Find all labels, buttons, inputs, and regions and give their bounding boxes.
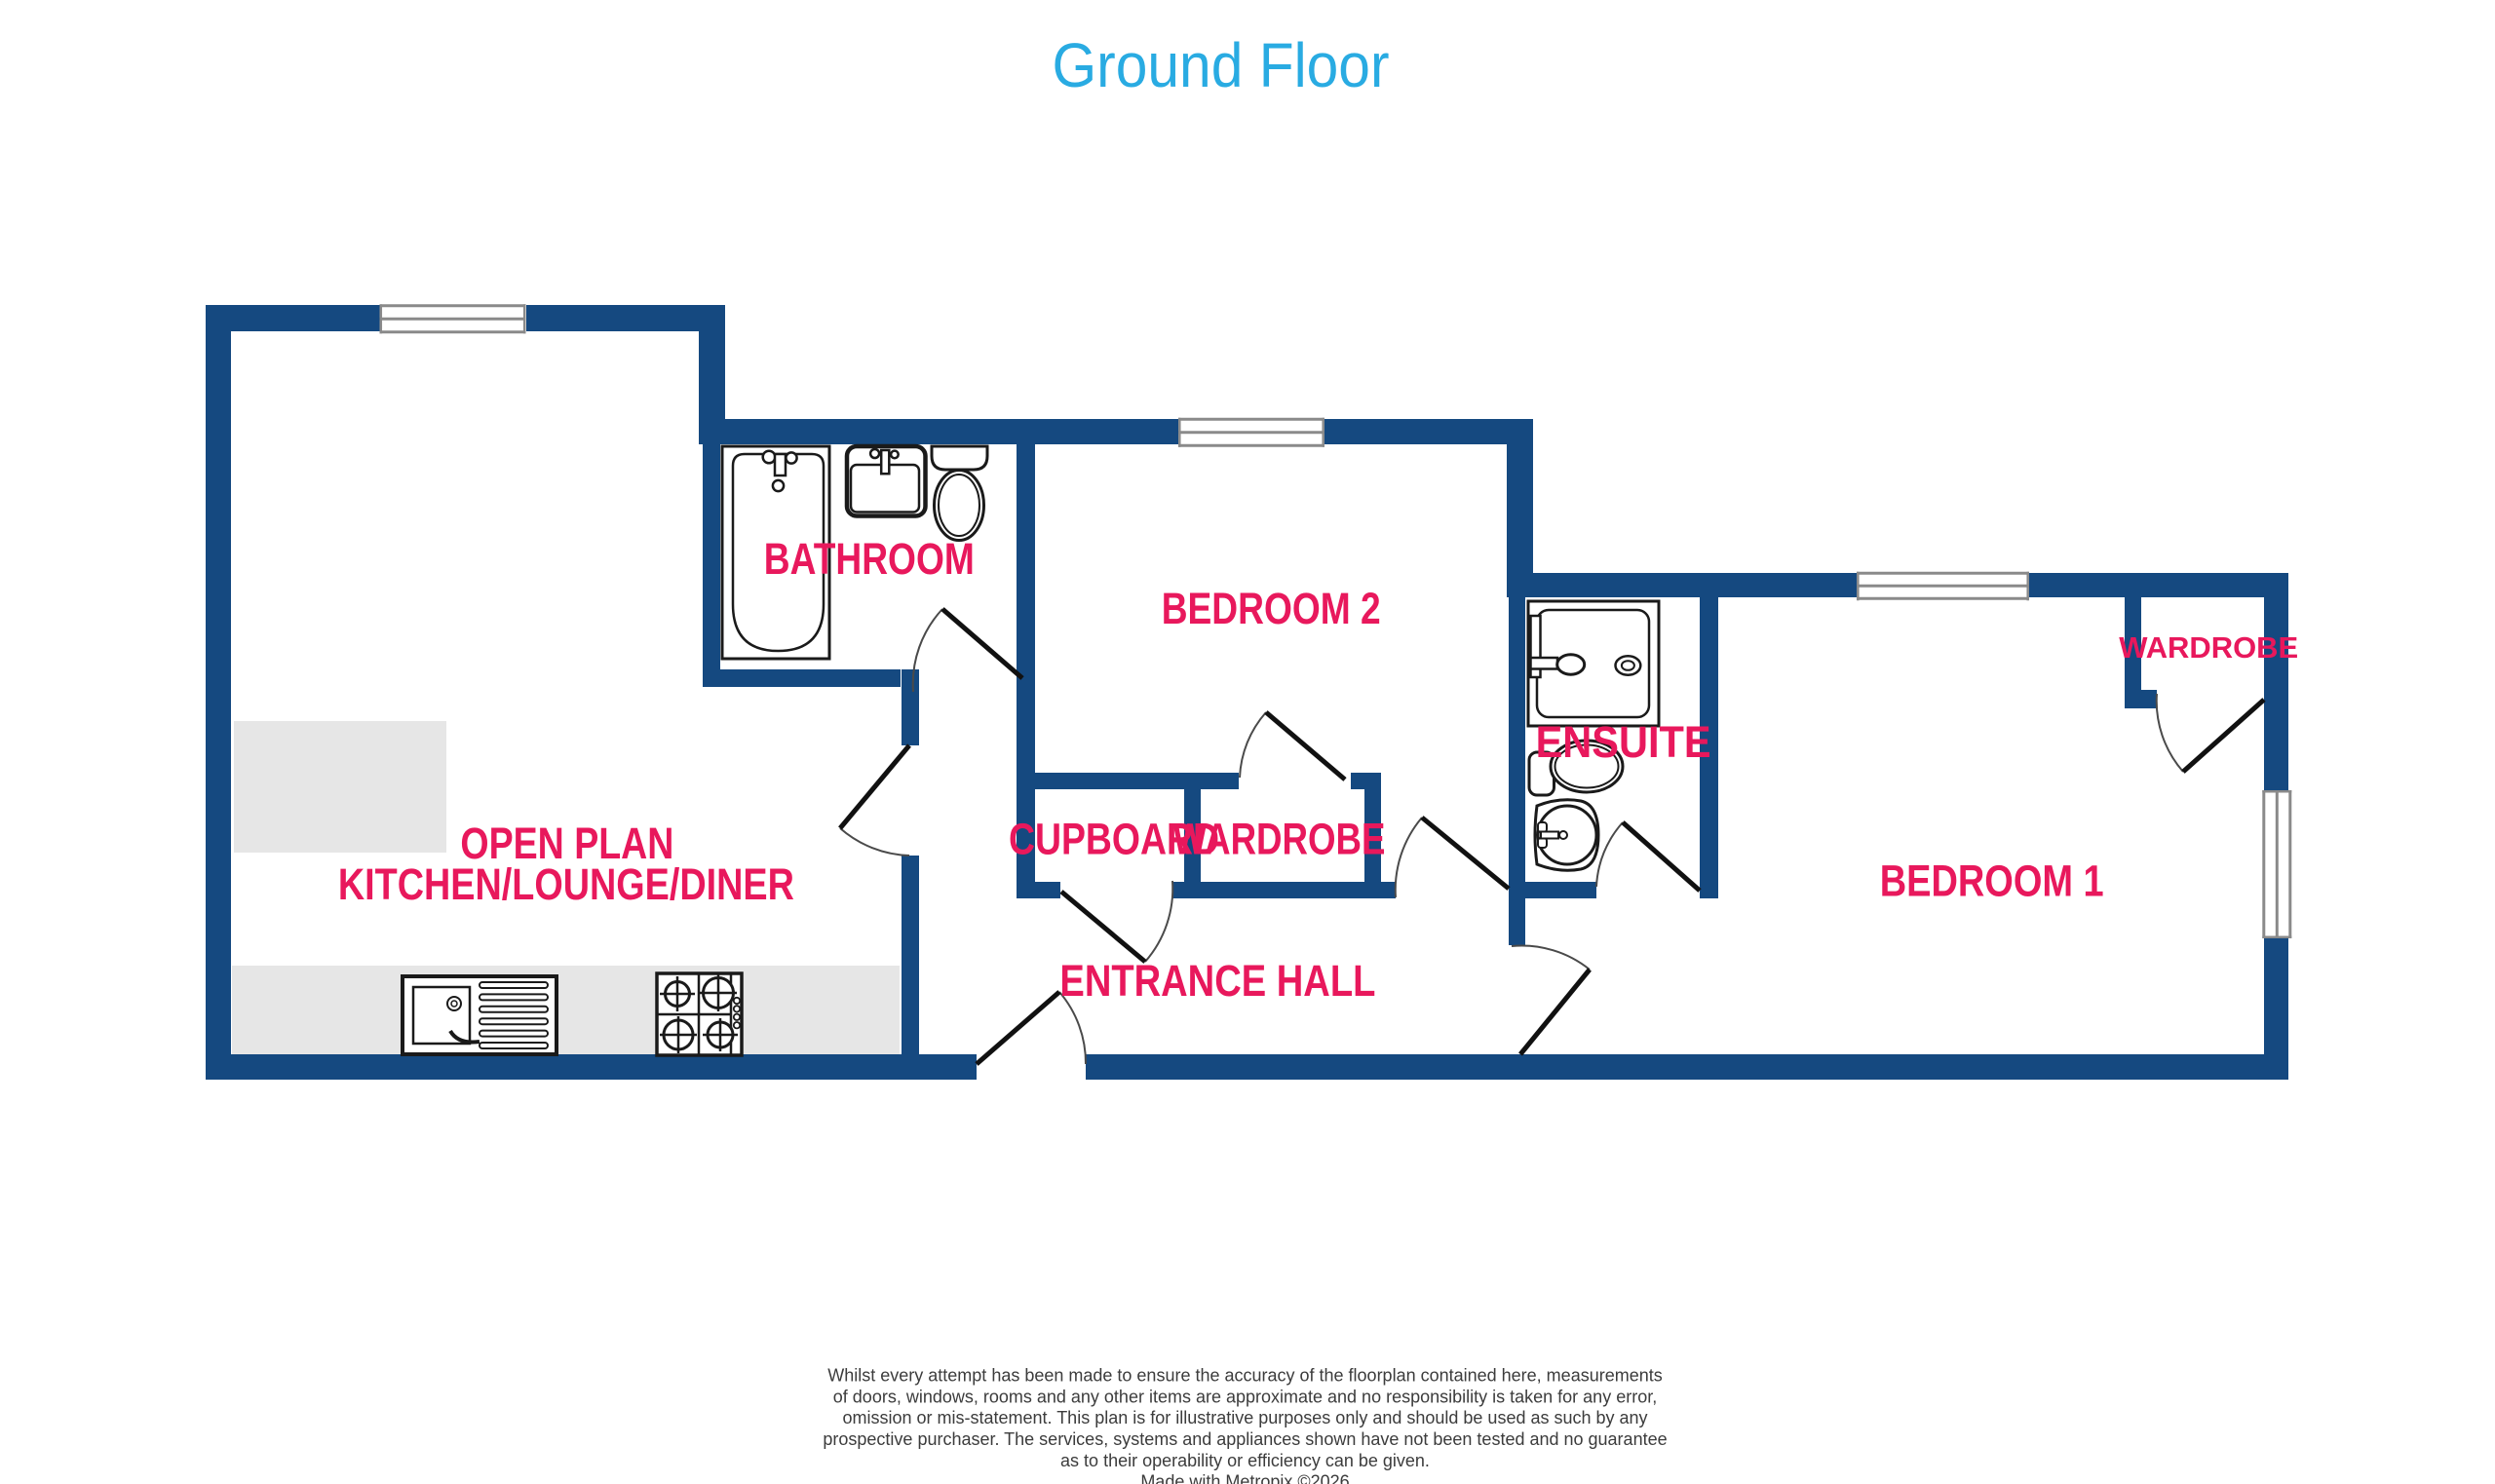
svg-text:Ground Floor: Ground Floor xyxy=(1053,30,1390,100)
svg-text:Whilst every attempt has been: Whilst every attempt has been made to en… xyxy=(827,1366,1662,1386)
svg-text:ENTRANCE HALL: ENTRANCE HALL xyxy=(1059,956,1375,1006)
svg-text:ENSUITE: ENSUITE xyxy=(1536,717,1711,767)
svg-text:BEDROOM 2: BEDROOM 2 xyxy=(1162,584,1381,633)
svg-text:omission or mis-statement. Thi: omission or mis-statement. This plan is … xyxy=(842,1408,1647,1427)
svg-text:as to their operability or eff: as to their operability or efficiency ca… xyxy=(1060,1451,1430,1470)
svg-text:WARDROBE: WARDROBE xyxy=(2119,630,2298,665)
svg-text:of doors, windows, rooms and a: of doors, windows, rooms and any other i… xyxy=(833,1387,1657,1406)
svg-text:KITCHEN/LOUNGE/DINER: KITCHEN/LOUNGE/DINER xyxy=(338,859,794,909)
svg-text:Made with Metropix ©2026: Made with Metropix ©2026 xyxy=(1140,1472,1349,1484)
svg-text:BEDROOM 1: BEDROOM 1 xyxy=(1880,856,2104,906)
svg-text:BATHROOM: BATHROOM xyxy=(764,534,975,584)
svg-text:WARDROBE: WARDROBE xyxy=(1173,815,1386,864)
svg-text:prospective purchaser. The ser: prospective purchaser. The services, sys… xyxy=(823,1429,1667,1449)
